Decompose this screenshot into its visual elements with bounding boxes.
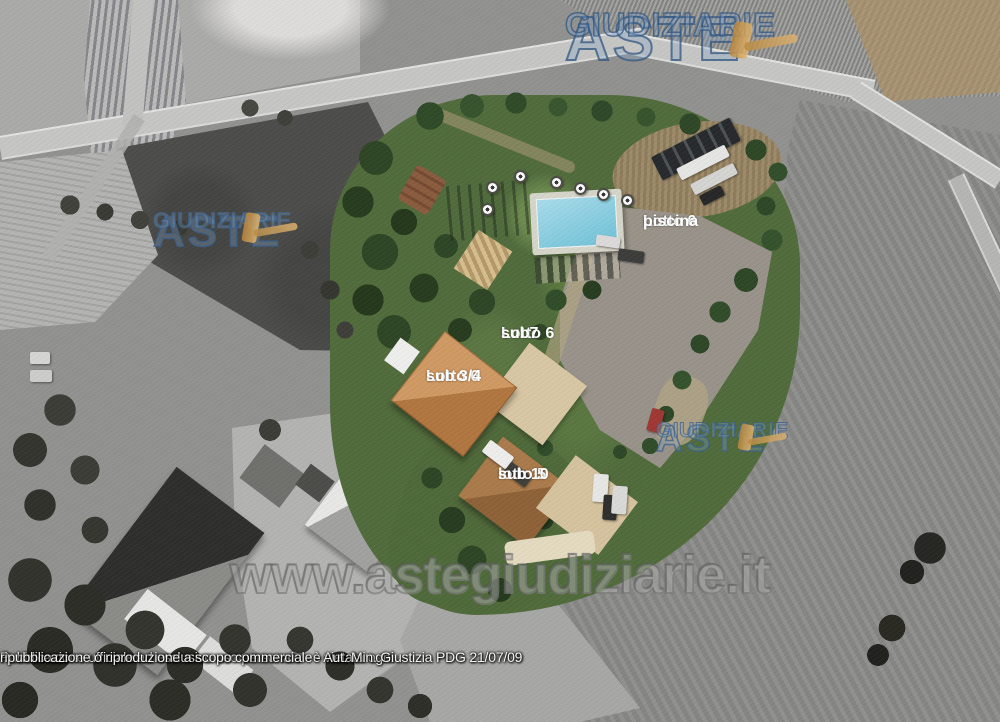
gavel-icon — [730, 16, 800, 72]
trees-grayscale — [0, 0, 1000, 722]
lot-label-line: piscina — [643, 212, 698, 232]
lot-label-line: sub7 — [501, 324, 538, 344]
watermark-url: www.astegiudiziarie.it — [230, 544, 770, 606]
lot-label-line: sub 10 — [498, 465, 549, 485]
gavel-icon — [242, 208, 299, 254]
aerial-photo: Lotto 6 piscina Lotto 6 sub7 Lotto 6 sub… — [0, 0, 1000, 722]
gavel-icon — [738, 420, 788, 460]
lot-label-line: sub 3/4 — [426, 367, 481, 387]
legal-footer-line2: ripubblicazione o riproduzione a scopo c… — [0, 645, 522, 671]
